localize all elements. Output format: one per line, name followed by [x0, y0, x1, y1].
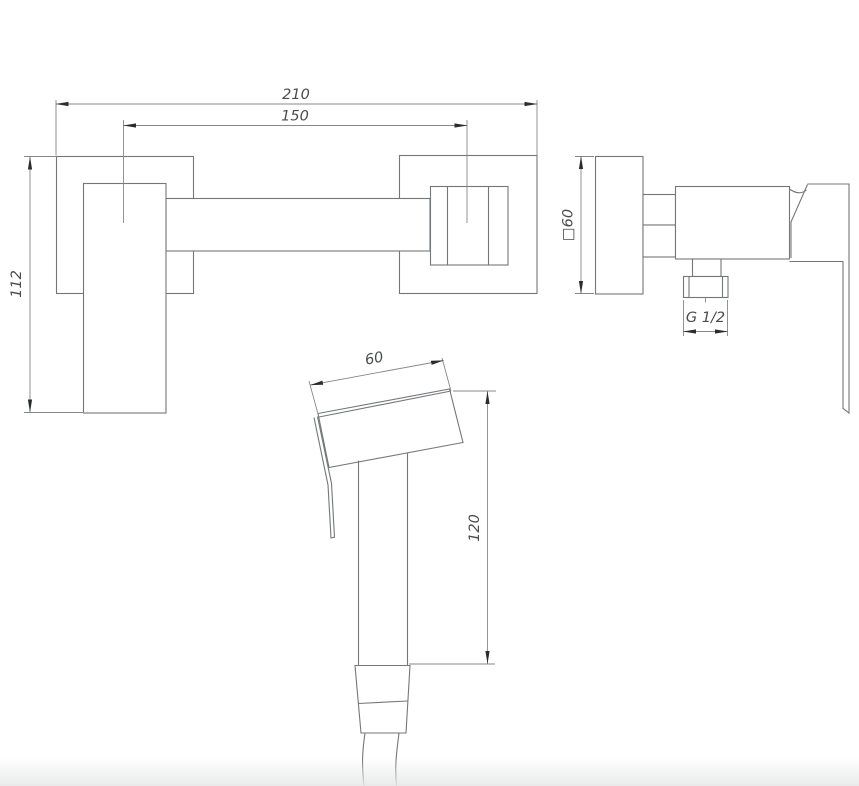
- dim-label-handle-length: 120: [467, 514, 483, 542]
- handle-front-face: [791, 185, 808, 259]
- dim-label-thread: G 1/2: [686, 310, 725, 326]
- sprayer-view: 60 120: [309, 350, 496, 786]
- technical-drawing-page: 210 150 112 □60: [0, 0, 859, 786]
- front-view: 210 150 112: [9, 87, 537, 413]
- dimension-thread: G 1/2: [684, 300, 728, 336]
- dim-label-plate-size: □60: [561, 209, 577, 241]
- sprayer-holder: [431, 187, 509, 266]
- connecting-bar: [166, 199, 430, 252]
- hose-right-edge: [396, 733, 399, 786]
- mixer-body-side: [676, 187, 790, 260]
- connector-stub-upper: [643, 195, 676, 226]
- extension-line: [575, 157, 594, 294]
- dim-label-head-length: 60: [364, 350, 385, 369]
- outlet-nut: [684, 277, 729, 298]
- dim-label-height: 112: [9, 270, 25, 298]
- outlet-neck: [693, 259, 722, 277]
- hose-left-edge: [363, 733, 365, 786]
- dimension-overall-width: 210: [56, 87, 537, 104]
- hose-connector: [355, 666, 410, 734]
- dim-label-mounting-distance: 150: [281, 109, 309, 125]
- connector-stub-lower: [643, 225, 676, 257]
- sprayer-handle-tube: [359, 453, 408, 666]
- cartridge-dome-curve: [790, 189, 807, 193]
- mixer-body: [84, 184, 167, 414]
- handle-grip: [790, 184, 850, 413]
- dim-label-overall-width: 210: [282, 87, 310, 103]
- dimension-height: 112: [9, 157, 30, 412]
- faucet-technical-drawing: 210 150 112 □60: [0, 0, 859, 786]
- dimension-mounting-distance: 150: [124, 109, 468, 126]
- sprayer-head: [318, 389, 463, 468]
- wall-plate-side: [596, 157, 644, 295]
- dimension-plate-size: □60: [561, 157, 595, 294]
- side-view: □60 G 1/2: [561, 157, 850, 414]
- handle-lever: [790, 184, 850, 413]
